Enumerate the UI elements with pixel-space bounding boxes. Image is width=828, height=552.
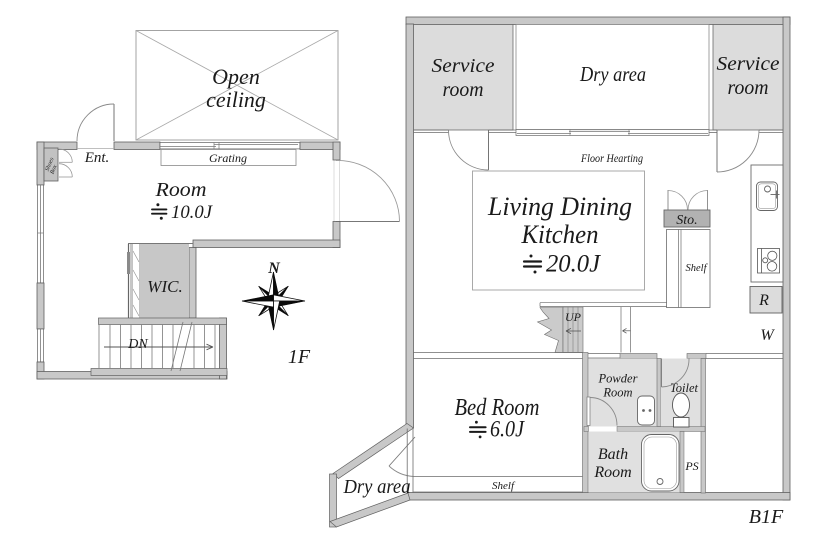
svg-text:Sto.: Sto. bbox=[676, 213, 697, 228]
svg-text:Shelf: Shelf bbox=[492, 480, 516, 492]
svg-text:20.0J: 20.0J bbox=[546, 251, 602, 278]
svg-text:room: room bbox=[728, 77, 769, 99]
svg-text:10.0J: 10.0J bbox=[171, 202, 214, 223]
svg-text:6.0J: 6.0J bbox=[490, 417, 526, 442]
svg-text:1F: 1F bbox=[288, 346, 311, 368]
svg-text:Grating: Grating bbox=[209, 151, 247, 165]
svg-text:B1F: B1F bbox=[749, 506, 784, 528]
svg-text:R: R bbox=[758, 292, 769, 309]
svg-text:Kitchen: Kitchen bbox=[521, 220, 599, 249]
svg-text:Room: Room bbox=[154, 179, 206, 201]
svg-text:Dry area: Dry area bbox=[579, 62, 646, 86]
svg-text:ceiling: ceiling bbox=[206, 87, 266, 112]
svg-text:Dry area: Dry area bbox=[343, 476, 411, 498]
svg-text:N: N bbox=[267, 260, 281, 277]
svg-text:Open: Open bbox=[212, 64, 260, 89]
svg-text:UP: UP bbox=[565, 310, 582, 324]
svg-text:Room: Room bbox=[593, 464, 631, 481]
svg-text:Floor Hearting: Floor Hearting bbox=[580, 151, 643, 165]
svg-text:WIC.: WIC. bbox=[147, 277, 182, 296]
svg-text:Service: Service bbox=[432, 55, 495, 77]
svg-text:W: W bbox=[760, 327, 775, 344]
svg-text:Service: Service bbox=[717, 53, 780, 75]
svg-text:Room: Room bbox=[602, 386, 632, 400]
svg-text:DN: DN bbox=[127, 337, 148, 352]
svg-text:PS: PS bbox=[684, 459, 698, 473]
svg-text:Ent.: Ent. bbox=[84, 150, 110, 166]
svg-text:Shelf: Shelf bbox=[686, 263, 709, 274]
svg-text:Living Dining: Living Dining bbox=[487, 192, 632, 221]
svg-text:Bath: Bath bbox=[598, 446, 628, 463]
svg-text:Toilet: Toilet bbox=[670, 381, 699, 395]
svg-text:room: room bbox=[443, 79, 484, 101]
svg-text:Powder: Powder bbox=[598, 372, 638, 386]
